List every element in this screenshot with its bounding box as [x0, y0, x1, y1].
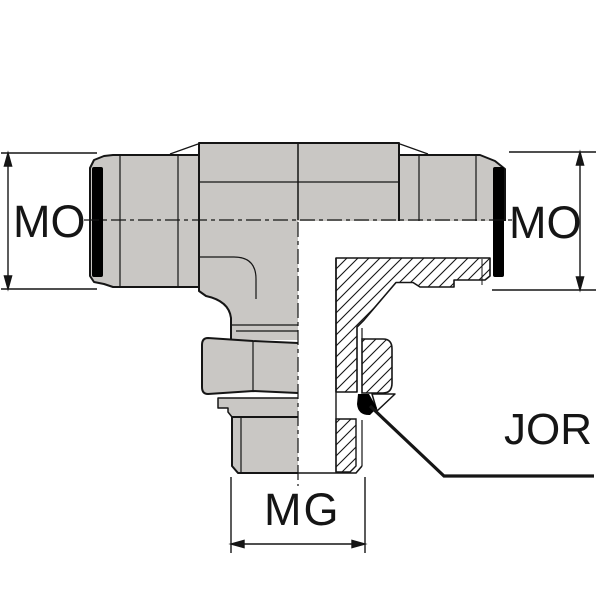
arrowhead-up — [576, 152, 583, 165]
left-arm — [90, 155, 199, 287]
seal-callout-label: JOR — [504, 408, 592, 452]
arrowhead-up — [4, 153, 11, 166]
dim-label-mg: MG — [264, 487, 341, 532]
section-locknut — [362, 339, 392, 393]
o-ring-left — [92, 167, 103, 277]
hex-chamfer-right — [400, 144, 428, 154]
hex-chamfer-left — [170, 144, 198, 154]
dim-label-mo-right: MO — [509, 200, 582, 245]
o-ring-right — [493, 167, 504, 277]
cross-section — [298, 258, 490, 473]
locknut — [202, 338, 298, 394]
arrowhead-down — [576, 277, 583, 290]
arrowhead-left — [231, 540, 244, 547]
dim-label-mo-left: MO — [13, 199, 86, 244]
technical-drawing-canvas: MO MO MG JOR — [0, 0, 600, 600]
arrowhead-right — [352, 540, 365, 547]
stud — [232, 417, 298, 473]
right-arm — [399, 155, 505, 221]
section-stud-wall — [336, 419, 356, 472]
arrowhead-down — [4, 276, 11, 289]
section-run-and-cone-wall — [336, 258, 490, 392]
